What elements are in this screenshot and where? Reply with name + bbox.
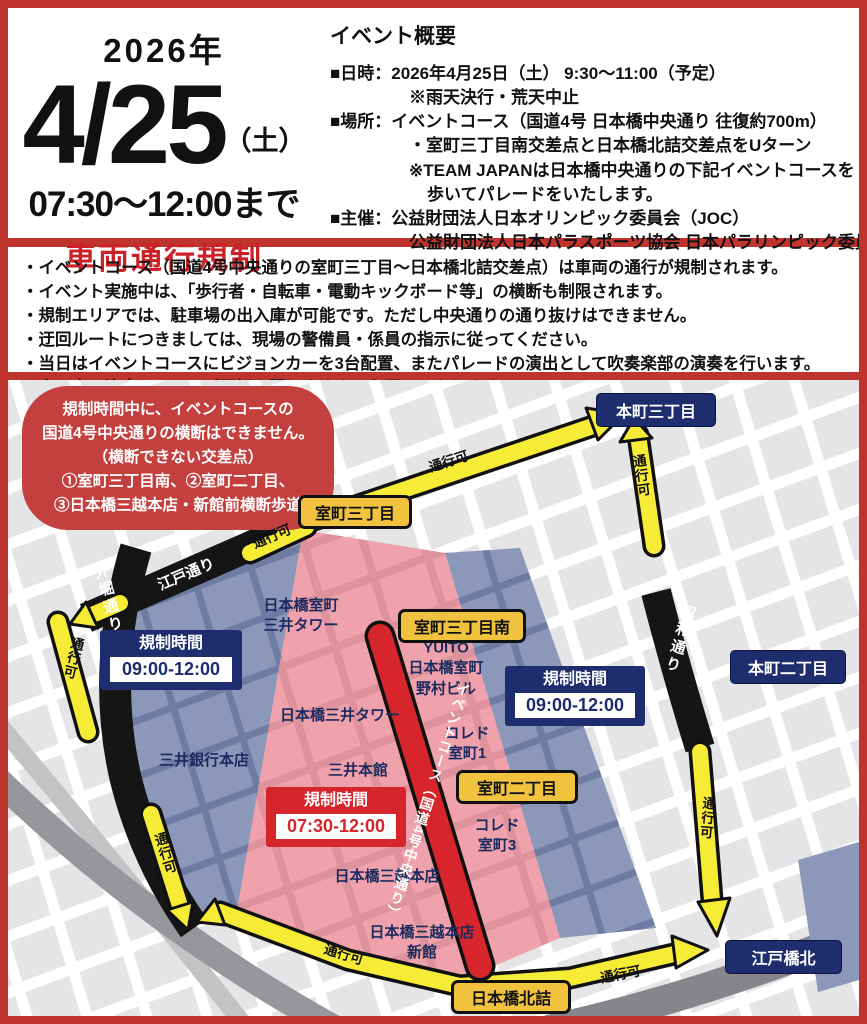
place-note-2: ※TEAM JAPANは日本橋中央通りの下記イベントコースを — [330, 159, 867, 183]
crossing-callout: 規制時間中に、イベントコースの 国道4号中央通りの横断はできません。 （横断でき… — [22, 386, 334, 530]
overview-place: ■場所：イベントコース（国道4号 日本橋中央通り 往復約700m） — [330, 110, 867, 134]
restriction-map: 規制時間中に、イベントコースの 国道4号中央通りの横断はできません。 （横断でき… — [8, 380, 859, 1016]
place-value: イベントコース（国道4号 日本橋中央通り 往復約700m） — [391, 112, 827, 131]
datetime-label: ■日時： — [330, 64, 391, 83]
passable-tag: 通行可 — [694, 795, 718, 840]
building-mitsui-bank: 三井銀行本店 — [159, 751, 249, 771]
date-block: 2026年 4/25 （土） 07:30～12:00まで 車両通行規制 — [8, 8, 320, 238]
organizer-1: 公益財団法人日本オリンピック委員会（JOC） — [391, 209, 749, 228]
restriction-time-range: 07:30～12:00まで — [8, 176, 320, 227]
overview-title: イベント概要 — [330, 20, 867, 50]
restriction-time-value: 07:30-12:00 — [276, 814, 396, 838]
restriction-time-value: 09:00-12:00 — [515, 693, 635, 717]
callout-line: （横断できない交差点） — [28, 446, 328, 470]
intersection-muromachi-3: 室町三丁目 — [298, 495, 412, 529]
callout-line: 規制時間中に、イベントコースの — [28, 398, 328, 422]
overview-datetime: ■日時：2026年4月25日（土） 9:30～11:00（予定） — [330, 62, 867, 86]
restriction-time-box-east: 規制時間 09:00-12:00 — [505, 666, 645, 726]
organizer-label: ■主催： — [330, 209, 391, 228]
restriction-time-box-center: 規制時間 07:30-12:00 — [266, 787, 406, 847]
organizer-2: 公益財団法人日本パラスポーツ協会 日本パラリンピック委員会（JPC） — [330, 231, 867, 255]
event-date: 4/25 — [23, 72, 225, 178]
intersection-muromachi-2: 室町二丁目 — [456, 770, 578, 804]
callout-line: 国道4号中央通りの横断はできません。 — [28, 422, 328, 446]
note-line: ・規制エリアでは、駐車場の出入庫が可能です。ただし中央通りの通り抜けはできません… — [22, 305, 845, 329]
intersection-nihonbashi-kitazume: 日本橋北詰 — [451, 980, 571, 1014]
datetime-note: ※雨天決行・荒天中止 — [330, 86, 867, 110]
note-line: ・当日はイベントコースにビジョンカーを3台配置、またパレードの演出として吹奏楽部… — [22, 353, 845, 377]
event-overview: イベント概要 ■日時：2026年4月25日（土） 9:30～11:00（予定） … — [320, 8, 867, 238]
restriction-notes: ・イベントコース（国道4号中央通りの室町三丁目～日本橋北詰交差点）は車両の通行が… — [8, 247, 859, 372]
header: 2026年 4/25 （土） 07:30～12:00まで 車両通行規制 イベント… — [8, 8, 859, 238]
place-note-3: 歩いてパレードをいたします。 — [330, 183, 867, 207]
intersection-edobashi-kita: 江戸橋北 — [725, 940, 842, 974]
datetime-value: 2026年4月25日（土） 9:30～11:00（予定） — [391, 64, 725, 83]
note-line: ・イベントコース（国道4号中央通りの室町三丁目～日本橋北詰交差点）は車両の通行が… — [22, 257, 845, 281]
overview-organizer: ■主催：公益財団法人日本オリンピック委員会（JOC） — [330, 207, 867, 231]
callout-line: ③日本橋三越本店・新館前横断歩道 — [28, 494, 328, 518]
place-note-1: ・室町三丁目南交差点と日本橋北詰交差点をUターン — [330, 134, 867, 158]
building-muromachi-mitsui-tower: 日本橋室町三井タワー — [263, 596, 338, 637]
traffic-restriction-notice: 2026年 4/25 （土） 07:30～12:00まで 車両通行規制 イベント… — [0, 0, 867, 1024]
note-line: ・迂回ルートにつきましては、現場の警備員・係員の指示に従ってください。 — [22, 329, 845, 353]
restriction-time-label: 規制時間 — [276, 790, 396, 812]
building-coredo-muromachi-3: コレド室町3 — [474, 816, 519, 857]
place-label: ■場所： — [330, 112, 391, 131]
restriction-time-label: 規制時間 — [515, 669, 635, 691]
building-mitsui-honkan: 三井本館 — [328, 761, 388, 781]
note-line: ・イベント実施中は、「歩行者・自転車・電動キックボード等」の横断も制限されます。 — [22, 281, 845, 305]
intersection-honcho-3: 本町三丁目 — [596, 393, 716, 427]
event-date-row: 4/25 （土） — [8, 72, 320, 178]
building-nihonbashi-mitsui-tower: 日本橋三井タワー — [280, 706, 400, 726]
callout-line: ①室町三丁目南、②室町二丁目、 — [28, 470, 328, 494]
event-weekday: （土） — [224, 129, 305, 155]
intersection-honcho-2: 本町二丁目 — [730, 650, 846, 684]
